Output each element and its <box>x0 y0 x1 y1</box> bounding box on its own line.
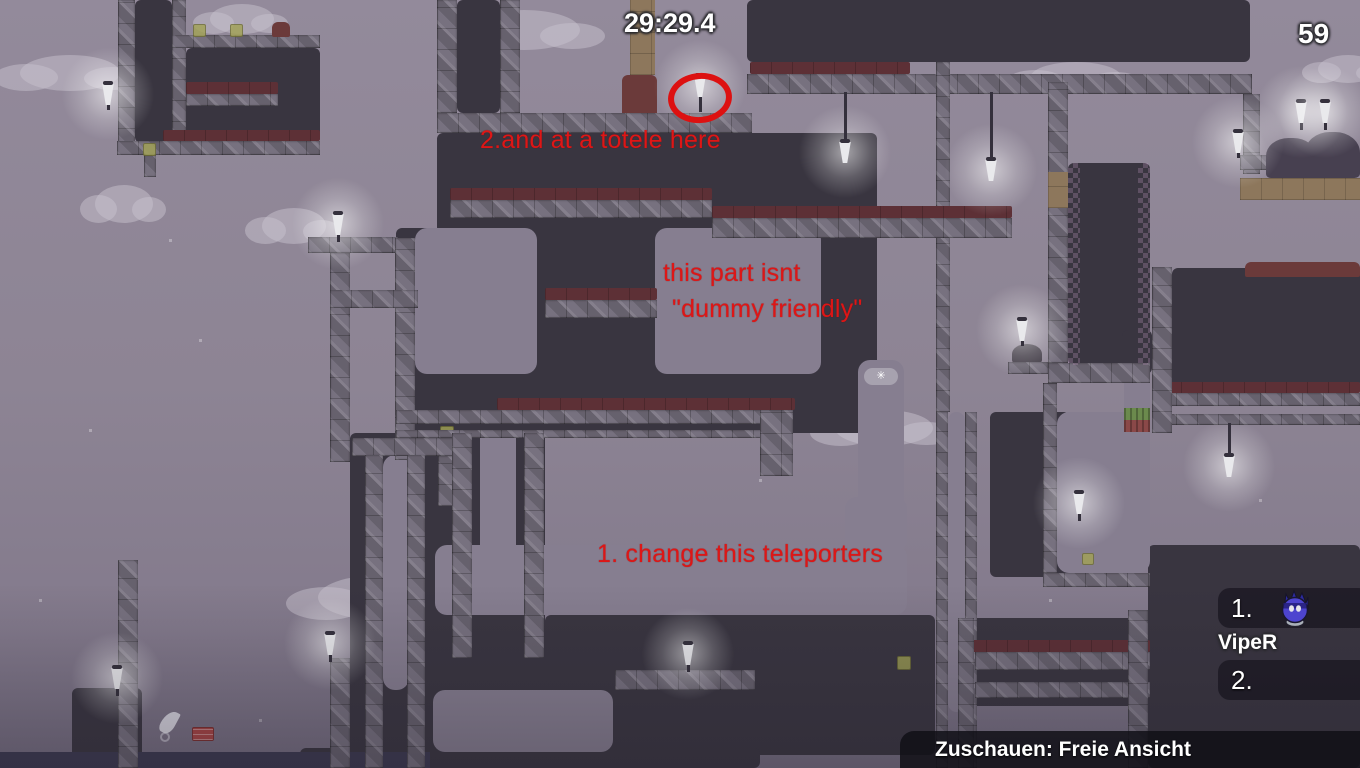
tile-beam <box>330 253 350 462</box>
spawn-marker: ✳ <box>864 368 898 385</box>
checker-tiles <box>1138 163 1150 365</box>
lamp-pole <box>337 234 340 242</box>
lamp-pole <box>1228 423 1231 456</box>
tile-beam <box>1155 393 1360 406</box>
rank-label: 1. <box>1231 593 1253 624</box>
lamp-cap <box>1233 129 1243 133</box>
score-counter: 59 <box>1298 18 1329 50</box>
lamp-cap <box>1224 453 1234 457</box>
tile-beam <box>760 410 793 476</box>
freeze-stripe <box>497 398 795 410</box>
lamp-pole <box>1078 513 1081 521</box>
switch-tile <box>897 656 911 670</box>
tile-beam <box>747 74 1252 94</box>
sign-brick <box>192 727 214 741</box>
maroon-block <box>272 22 290 37</box>
tile-beam <box>975 682 1150 698</box>
tile-beam <box>365 455 383 768</box>
lamp-pole <box>844 92 847 142</box>
tile-beam <box>396 410 793 424</box>
lamp-cap <box>112 665 122 669</box>
annotation-note-mid-1: this part isnt <box>663 259 801 288</box>
switch-tile <box>143 143 156 156</box>
player-avatar <box>1275 589 1315 627</box>
lamp-pole <box>116 688 119 696</box>
hook-ring <box>160 732 170 742</box>
tile-beam <box>936 412 948 768</box>
lamp-cap <box>103 81 113 85</box>
lamp-cap <box>1320 99 1330 103</box>
annotation-note-top: 2.and at a totele here <box>480 126 721 155</box>
dark-region <box>457 0 500 113</box>
game-viewport[interactable]: ✳ 2.and at a totele here this part isnt … <box>0 0 1360 768</box>
lamp-pole <box>687 664 690 672</box>
freeze-stripe <box>545 288 657 300</box>
tile-beam <box>437 0 457 113</box>
rank-label: 2. <box>1231 665 1253 696</box>
tile-beam <box>330 290 418 308</box>
tile-beam <box>1043 573 1150 587</box>
dark-region <box>1172 268 1360 388</box>
dark-region <box>747 0 1250 62</box>
background-window <box>383 455 409 690</box>
tile-beam <box>712 218 1012 238</box>
tile-beam <box>1152 267 1172 433</box>
stars <box>0 0 1 1</box>
freeze-stripe <box>186 82 278 94</box>
lamp-pole <box>329 654 332 662</box>
tile-beam <box>1155 414 1360 425</box>
background-window <box>415 228 537 374</box>
race-timer: 29:29.4 <box>624 8 716 39</box>
tile-beam <box>172 0 186 143</box>
dirt-beam <box>1048 172 1068 208</box>
switch-tile <box>230 24 243 37</box>
cloud <box>95 185 153 223</box>
teleporter-tile <box>1124 408 1150 420</box>
teleporter-tile <box>1124 420 1150 432</box>
tile-beam <box>144 155 156 177</box>
freeze-stripe <box>965 640 1150 652</box>
spectate-mode-bar: Zuschauen: Freie Ansicht <box>900 731 1360 768</box>
tile-beam <box>500 0 520 113</box>
annotation-note-mid-2: "dummy friendly" <box>672 295 862 324</box>
freeze-stripe <box>450 188 712 200</box>
freeze-stripe <box>750 62 910 74</box>
background-window <box>433 690 613 752</box>
scoreboard-row-2: 2. <box>1218 660 1360 700</box>
tile-beam <box>975 652 1150 670</box>
scoreboard-row-1: 1. <box>1218 588 1360 628</box>
lamp-cap <box>840 139 850 143</box>
tile-beam <box>524 433 544 658</box>
lamp-cap <box>986 157 996 161</box>
tile-beam <box>407 455 425 768</box>
annotation-note-bottom: 1. change this teleporters <box>597 540 883 569</box>
tile-beam <box>1048 363 1150 383</box>
lamp-pole <box>1324 122 1327 130</box>
lamp-pole <box>990 92 993 160</box>
tile-beam <box>450 200 712 218</box>
tile-beam <box>395 238 415 460</box>
lamp-cap <box>1074 490 1084 494</box>
lamp-cap <box>325 631 335 635</box>
checker-tiles <box>1068 163 1080 365</box>
lamp-cap <box>683 641 693 645</box>
player-name: VipeR <box>1218 631 1277 655</box>
freeze-stripe <box>1160 382 1360 393</box>
tile-beam <box>545 300 657 318</box>
spectate-mode-label: Zuschauen: Freie Ansicht <box>935 738 1191 762</box>
maroon-block <box>1245 262 1360 277</box>
switch-tile <box>193 24 206 37</box>
lamp-cap <box>333 211 343 215</box>
tile-beam <box>186 94 278 106</box>
lamp-cap <box>1017 317 1027 321</box>
switch-tile <box>1082 553 1094 565</box>
tile-beam <box>452 433 472 658</box>
freeze-stripe <box>163 130 320 141</box>
